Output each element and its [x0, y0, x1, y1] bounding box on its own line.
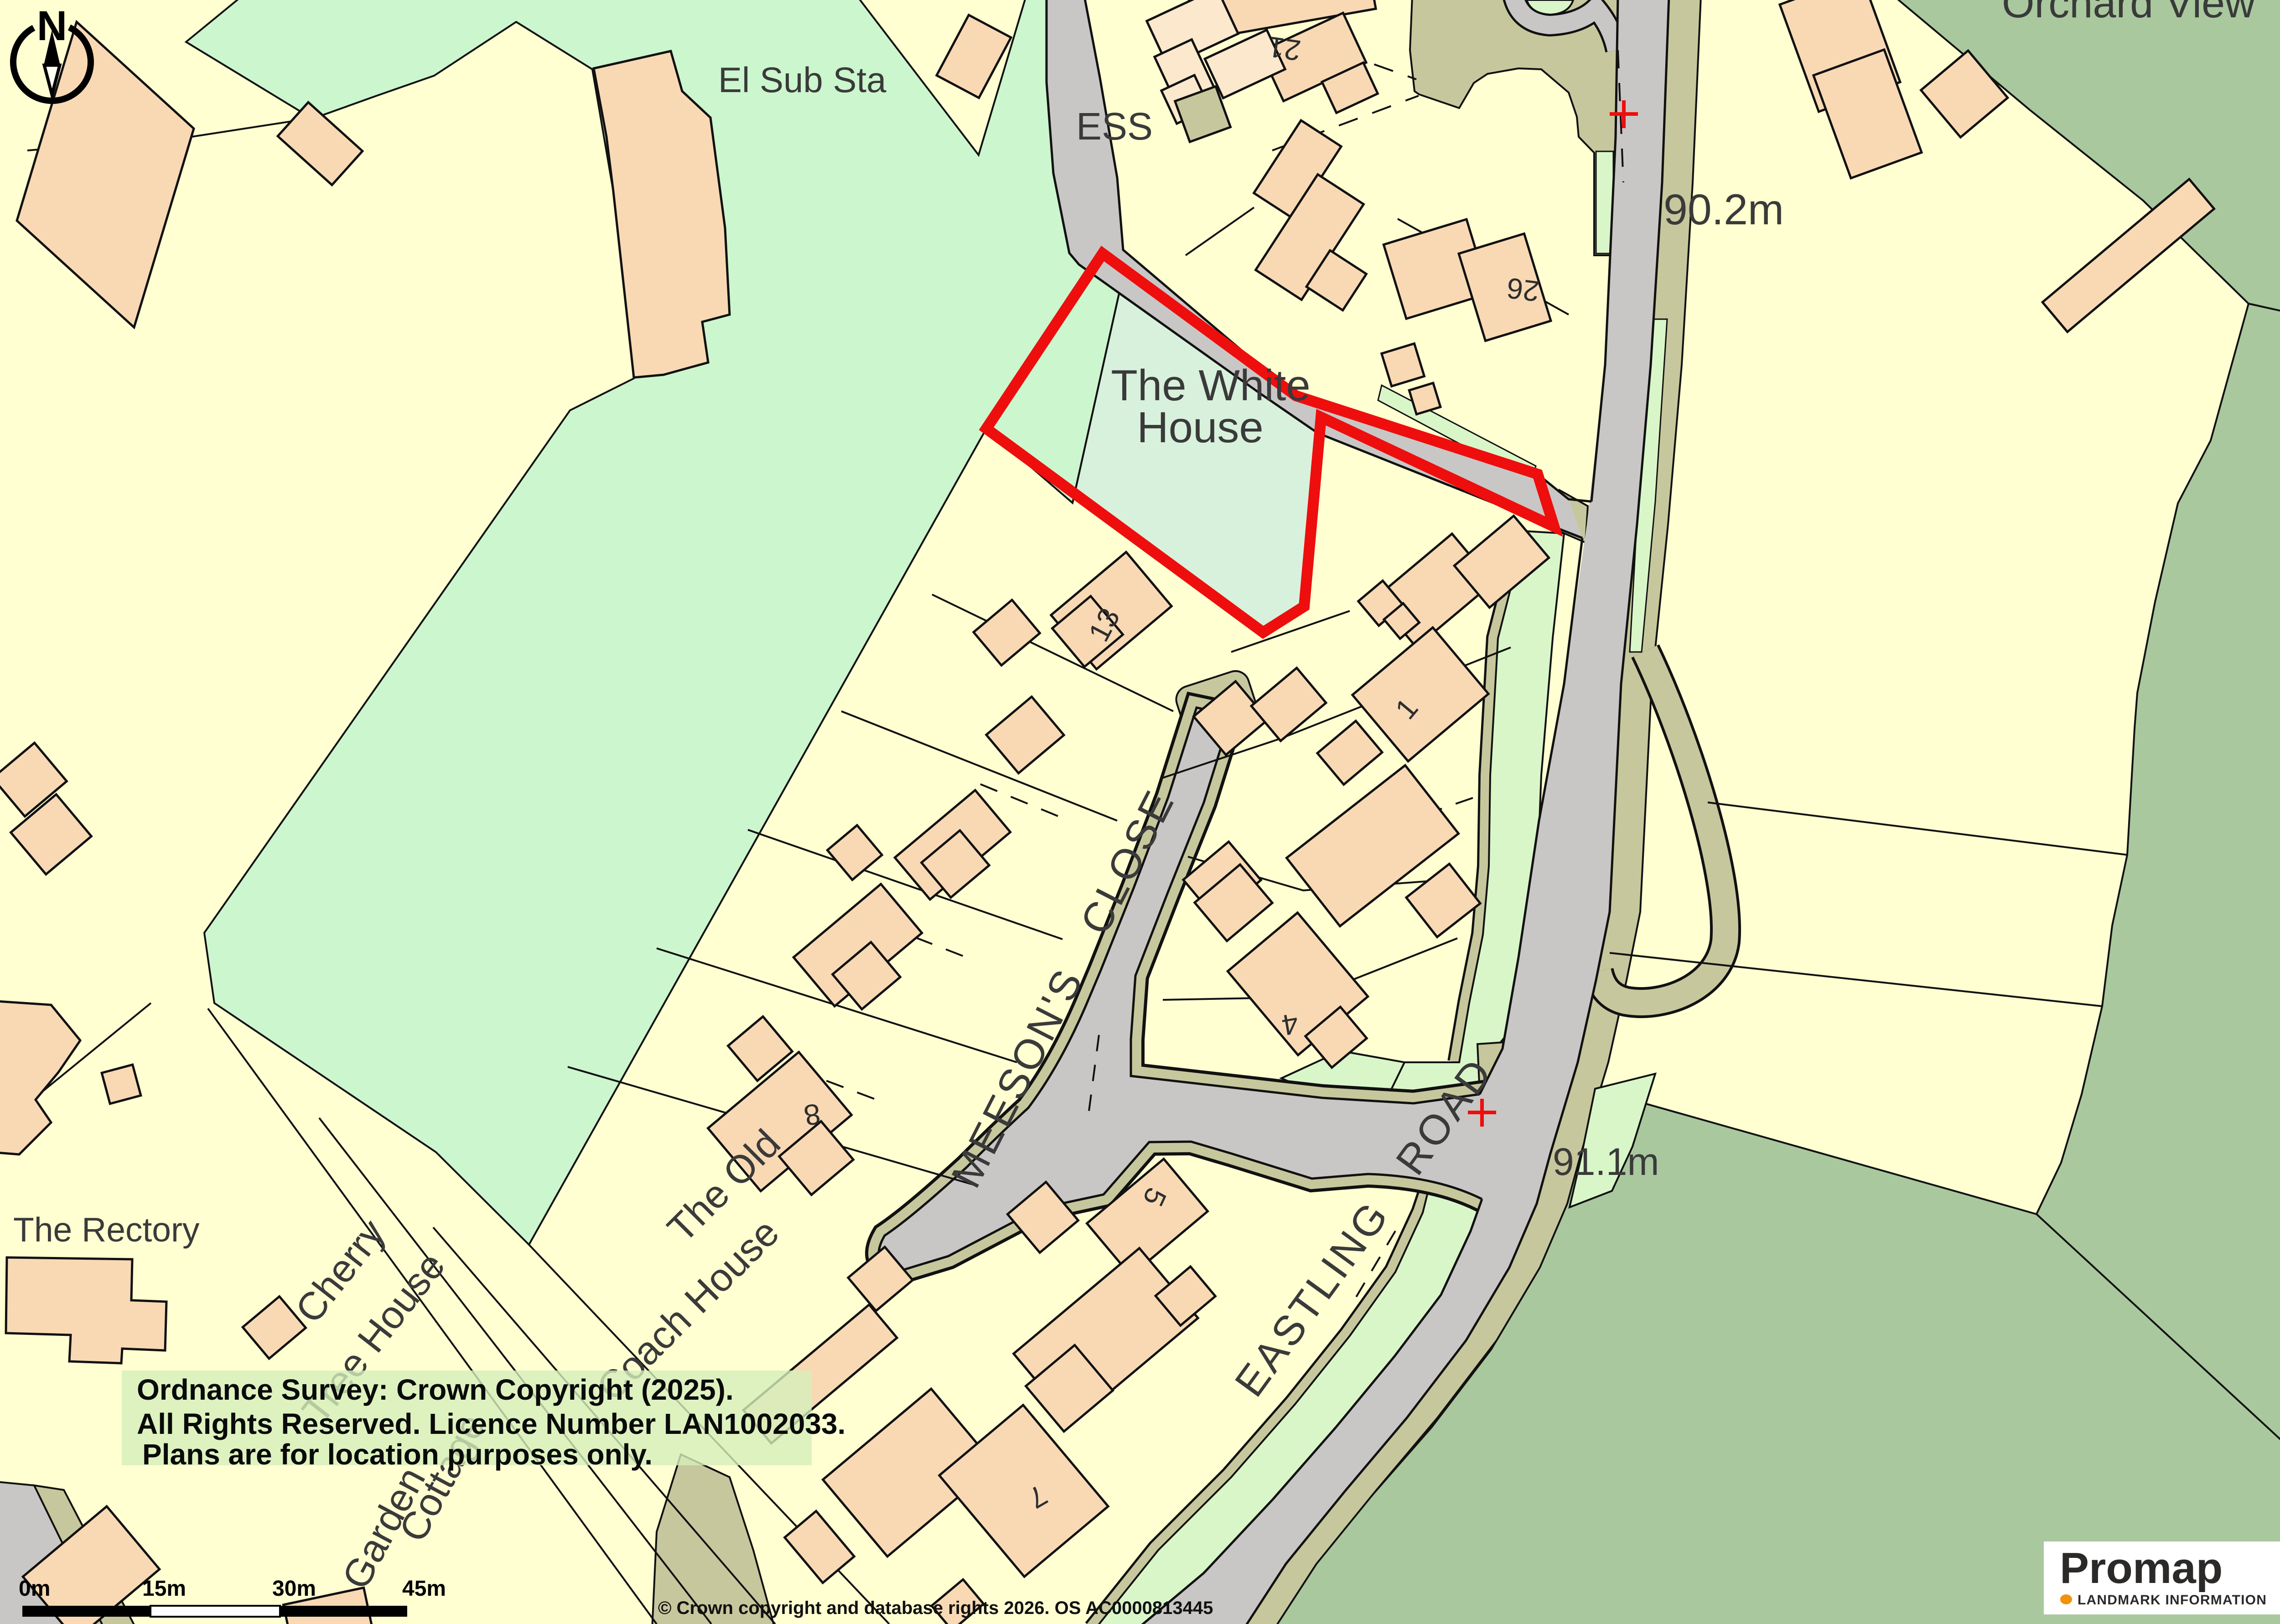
svg-text:Plans are for location purpose: Plans are for location purposes only. — [142, 1438, 653, 1471]
svg-text:ESS: ESS — [1076, 105, 1153, 148]
svg-text:30m: 30m — [272, 1577, 316, 1601]
svg-text:The White: The White — [1111, 361, 1310, 410]
svg-text:0m: 0m — [19, 1577, 50, 1601]
svg-text:© Crown copyright and database: © Crown copyright and database rights 20… — [658, 1598, 1213, 1618]
svg-text:Promap: Promap — [2060, 1544, 2223, 1593]
svg-text:91.1m: 91.1m — [1553, 1140, 1659, 1183]
svg-text:90.2m: 90.2m — [1663, 186, 1784, 234]
svg-text:26: 26 — [1505, 271, 1541, 308]
svg-text:21: 21 — [1266, 30, 1303, 67]
svg-text:15m: 15m — [142, 1577, 186, 1601]
svg-text:N: N — [37, 3, 67, 49]
svg-text:House: House — [1137, 403, 1264, 452]
svg-text:Ordnance Survey: Crown Copyrig: Ordnance Survey: Crown Copyright (2025). — [137, 1373, 734, 1406]
svg-text:The Rectory: The Rectory — [13, 1210, 200, 1249]
svg-text:45m: 45m — [402, 1577, 446, 1601]
svg-text:All Rights Reserved. Licence N: All Rights Reserved. Licence Number LAN1… — [137, 1407, 845, 1440]
svg-text:LANDMARK INFORMATION: LANDMARK INFORMATION — [2078, 1593, 2267, 1608]
svg-text:El Sub Sta: El Sub Sta — [718, 60, 886, 100]
svg-text:Orchard View: Orchard View — [2002, 0, 2255, 26]
